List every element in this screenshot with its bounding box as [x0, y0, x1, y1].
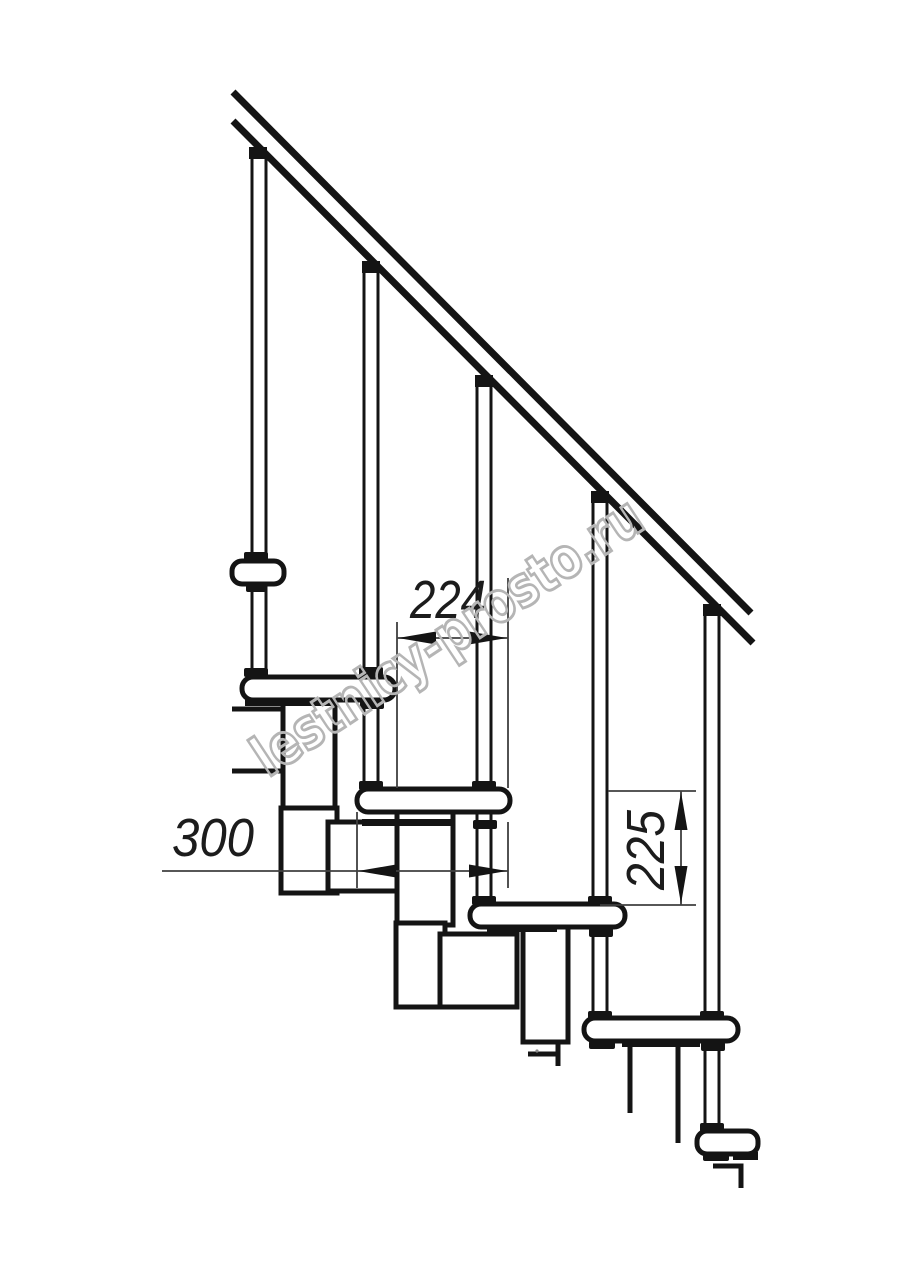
- collar-b4-tread4-top: [588, 896, 612, 905]
- nut-b3-tread3: [473, 820, 497, 829]
- collar-b5-tread5-top: [700, 1011, 724, 1020]
- tread-upper-partial: [232, 561, 284, 584]
- nut-b4-tread5: [589, 1041, 615, 1049]
- baluster-1: [252, 157, 266, 690]
- module-cut-under-tread6: [713, 1166, 741, 1188]
- dim-225-arrow-up: [675, 792, 688, 830]
- support-module-s2: [328, 822, 403, 891]
- tread-4-shadow: [487, 925, 557, 932]
- baluster-1-rail-cap: [249, 147, 267, 159]
- handrail: [233, 92, 753, 643]
- collar-b5-tread6: [700, 1123, 724, 1132]
- collar-b1-treadA-bot: [246, 585, 266, 592]
- nut-b5-tread5: [701, 1042, 725, 1051]
- baluster-4: [593, 500, 607, 1030]
- tread-3: [357, 789, 510, 812]
- stray-speck: [535, 1049, 538, 1052]
- dim-300-label: 300: [172, 808, 254, 868]
- dimension-225: 225: [600, 791, 696, 905]
- tread-6-partial: [697, 1131, 758, 1154]
- baluster-3-rail-cap: [475, 375, 493, 387]
- collar-b1-tread2: [244, 668, 268, 677]
- tread-5: [584, 1018, 738, 1041]
- tread-5-shadow: [622, 1040, 700, 1047]
- collar-b4-tread5: [588, 1011, 612, 1020]
- baluster-5: [705, 613, 719, 1142]
- baluster-2-rail-cap: [362, 261, 380, 273]
- tread-4: [470, 904, 625, 927]
- stair-drawing-canvas: 224 300 225 lestnicy-prosto.ru: [0, 0, 914, 1280]
- collar-b3-tread3-top: [472, 781, 496, 790]
- collar-b1-treadA-top: [244, 552, 268, 561]
- stair-drawing: 224 300 225 lestnicy-prosto.ru: [0, 0, 914, 1280]
- nut-b4-tread4: [589, 928, 613, 937]
- dim-225-label: 225: [616, 809, 676, 891]
- baluster-5-rail-cap: [703, 604, 721, 616]
- tread-6-shadow: [733, 1152, 758, 1160]
- support-module-v3: [397, 810, 453, 925]
- collar-b2-tread3: [359, 781, 383, 790]
- module-cut-under-v4: [528, 1042, 558, 1066]
- tread-3-shadow: [362, 819, 452, 826]
- support-module-v4: [523, 925, 568, 1042]
- dim-225-arrow-down: [675, 866, 688, 904]
- nut-b5-tread6: [703, 1153, 729, 1161]
- collar-b3-tread4: [472, 896, 496, 905]
- support-module-s3: [440, 934, 517, 1007]
